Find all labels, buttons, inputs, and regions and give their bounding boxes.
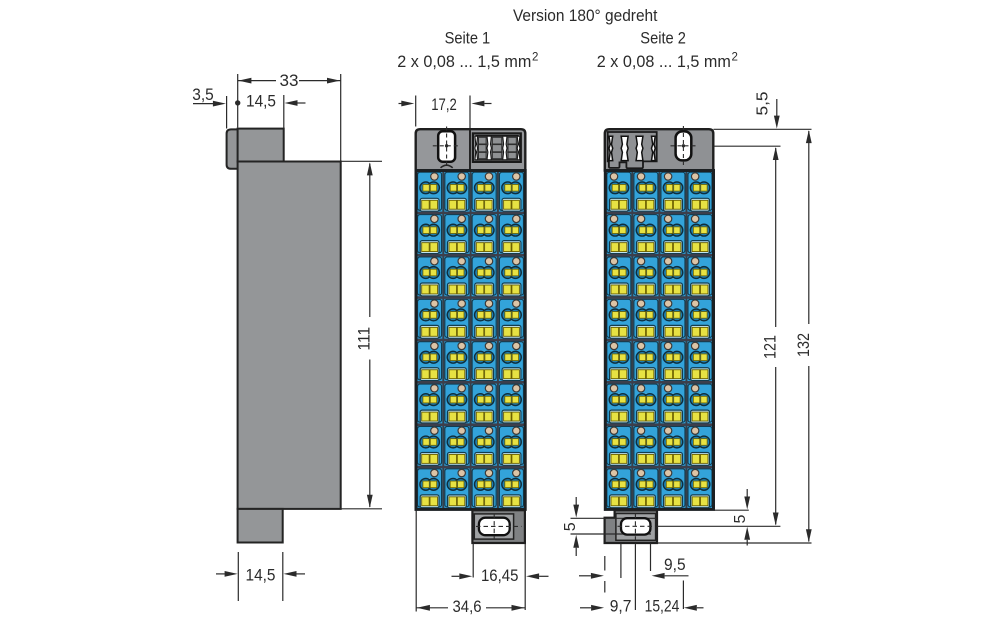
svg-text:14,5: 14,5 (246, 92, 276, 111)
svg-text:33: 33 (280, 71, 299, 90)
svg-text:17,2: 17,2 (431, 95, 457, 114)
svg-text:Version 180° gedreht: Version 180° gedreht (513, 6, 658, 25)
svg-text:15,24: 15,24 (645, 596, 680, 615)
svg-text:9,7: 9,7 (610, 596, 632, 615)
svg-text:16,45: 16,45 (481, 566, 519, 585)
svg-text:3,5: 3,5 (192, 85, 214, 104)
svg-text:5,5: 5,5 (755, 91, 772, 115)
svg-text:9,5: 9,5 (664, 555, 686, 574)
svg-text:2 x 0,08 ... 1,5 mm: 2 x 0,08 ... 1,5 mm (397, 52, 531, 71)
svg-text:2: 2 (532, 52, 538, 64)
svg-text:2 x 0,08 ... 1,5 mm: 2 x 0,08 ... 1,5 mm (597, 52, 731, 71)
svg-text:121: 121 (761, 335, 780, 359)
svg-text:Seite 1: Seite 1 (445, 29, 491, 48)
svg-text:132: 132 (794, 333, 813, 357)
svg-text:111: 111 (354, 327, 373, 351)
svg-text:5: 5 (562, 522, 579, 531)
svg-text:5: 5 (732, 514, 749, 523)
svg-text:2: 2 (732, 52, 738, 64)
svg-text:Seite 2: Seite 2 (640, 29, 686, 48)
svg-text:34,6: 34,6 (453, 597, 482, 616)
svg-text:14,5: 14,5 (246, 565, 276, 584)
